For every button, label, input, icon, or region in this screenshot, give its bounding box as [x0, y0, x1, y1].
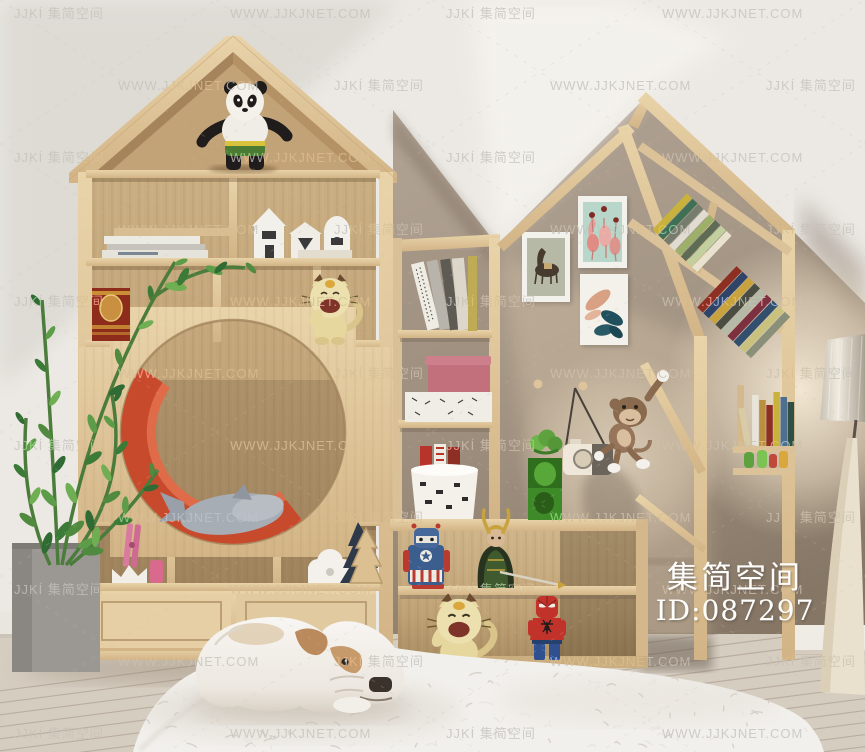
- watermark-text: WWW.JJKJNET.COM: [230, 6, 371, 21]
- watermark-text: JJKÍ 集简空间: [334, 78, 424, 93]
- watermark-text: JJKÍ 集简空间: [14, 294, 104, 309]
- watermark-text: WWW.JJKJNET.COM: [118, 222, 259, 237]
- watermark-text: WWW.JJKJNET.COM: [550, 654, 691, 669]
- watermark-text: WWW.JJKJNET.COM: [662, 438, 803, 453]
- watermark-text: WWW.JJKJNET.COM: [230, 582, 371, 597]
- watermark-text: WWW.JJKJNET.COM: [662, 726, 803, 741]
- watermark-text: WWW.JJKJNET.COM: [662, 294, 803, 309]
- watermark-text: JJKÍ 集简空间: [334, 510, 424, 525]
- watermark-text: WWW.JJKJNET.COM: [118, 366, 259, 381]
- watermark-text: JJKÍ 集简空间: [446, 150, 536, 165]
- watermark-text: WWW.JJKJNET.COM: [662, 150, 803, 165]
- watermark-text: WWW.JJKJNET.COM: [118, 78, 259, 93]
- watermark-text: JJKÍ 集简空间: [446, 726, 536, 741]
- watermark-text: JJKÍ 集简空间: [446, 294, 536, 309]
- watermark-text: WWW.JJKJNET.COM: [230, 150, 371, 165]
- watermark-text: WWW.JJKJNET.COM: [230, 294, 371, 309]
- watermark-text: JJKÍ 集简空间: [14, 582, 104, 597]
- watermark-text: JJKÍ 集简空间: [334, 222, 424, 237]
- watermark-text: WWW.JJKJNET.COM: [550, 366, 691, 381]
- watermark-text: WWW.JJKJNET.COM: [118, 654, 259, 669]
- watermark-text: JJKÍ 集简空间: [334, 654, 424, 669]
- watermark-text: JJKÍ 集简空间: [766, 510, 856, 525]
- watermark-text: WWW.JJKJNET.COM: [118, 510, 259, 525]
- watermark-text: JJKÍ 集简空间: [766, 78, 856, 93]
- watermark-text: JJKÍ 集简空间: [446, 438, 536, 453]
- watermark-text: JJKÍ 集简空间: [766, 222, 856, 237]
- watermark-text: JJKÍ 集简空间: [334, 366, 424, 381]
- model-id-overlay: ID:087297: [656, 594, 815, 627]
- watermark-text: JJKÍ 集简空间: [446, 582, 536, 597]
- watermark-text: JJKÍ 集简空间: [14, 438, 104, 453]
- watermark-text: WWW.JJKJNET.COM: [550, 222, 691, 237]
- watermark-text: WWW.JJKJNET.COM: [550, 510, 691, 525]
- watermark-text: WWW.JJKJNET.COM: [550, 78, 691, 93]
- brand-name-overlay: 集简空间: [667, 560, 803, 596]
- watermark-text: JJKÍ 集简空间: [14, 6, 104, 21]
- watermark-text: JJKÍ 集简空间: [14, 726, 104, 741]
- watermark-text: JJKÍ 集简空间: [14, 150, 104, 165]
- room-render: WWW.JJKJNET.COMJJKÍ 集简空间WWW.JJKJNET.COMJ…: [0, 0, 865, 752]
- watermark-text: WWW.JJKJNET.COM: [230, 438, 371, 453]
- watermark-text: WWW.JJKJNET.COM: [230, 726, 371, 741]
- watermark-text: WWW.JJKJNET.COM: [662, 6, 803, 21]
- watermark-text: JJKÍ 集简空间: [766, 654, 856, 669]
- watermark-text: JJKÍ 集简空间: [766, 366, 856, 381]
- watermark-text: JJKÍ 集简空间: [446, 6, 536, 21]
- scene-svg: WWW.JJKJNET.COMJJKÍ 集简空间WWW.JJKJNET.COMJ…: [0, 0, 865, 752]
- brand-overlay: 集简空间 ID:087297: [656, 560, 815, 627]
